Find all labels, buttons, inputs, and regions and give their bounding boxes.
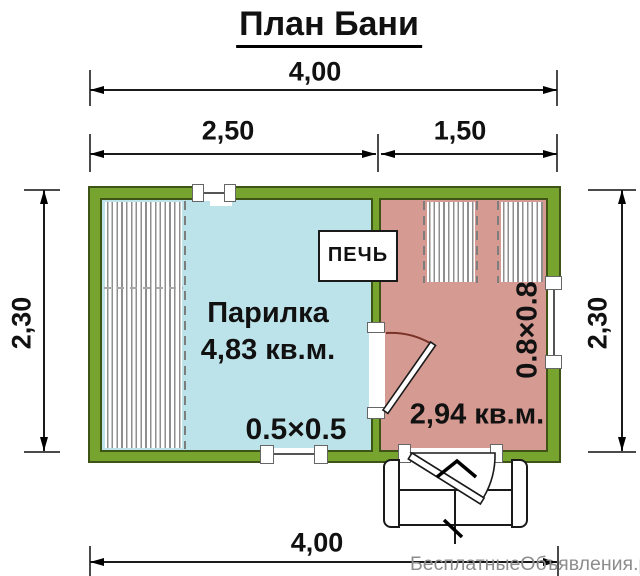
bath-floor-plan: План Бани 4,00 2,50 1,50 2,30 2,30 — [0, 0, 640, 576]
steam-room-name: Парилка — [201, 295, 335, 332]
window-small-label: 0.5×0.5 — [246, 413, 347, 447]
stove-label: ПЕЧЬ — [328, 244, 388, 266]
window-large-label: 0.8×0.8 — [512, 281, 545, 379]
rest-room-area: 2,94 кв.м. — [410, 399, 544, 432]
watermark-text: БесплатныеОбъявления.рф — [410, 553, 640, 576]
stove-box: ПЕЧЬ — [318, 230, 398, 282]
dim-arrow — [90, 558, 104, 566]
stair-tick-mark — [444, 520, 462, 537]
interior-door-arc — [386, 333, 430, 343]
dim-label-bottom-total: 4,00 — [291, 528, 344, 559]
steam-room-area: 4,83 кв.м. — [201, 332, 335, 369]
steam-room-label: Парилка 4,83 кв.м. — [201, 295, 335, 369]
entrance-door-swing — [412, 453, 495, 498]
